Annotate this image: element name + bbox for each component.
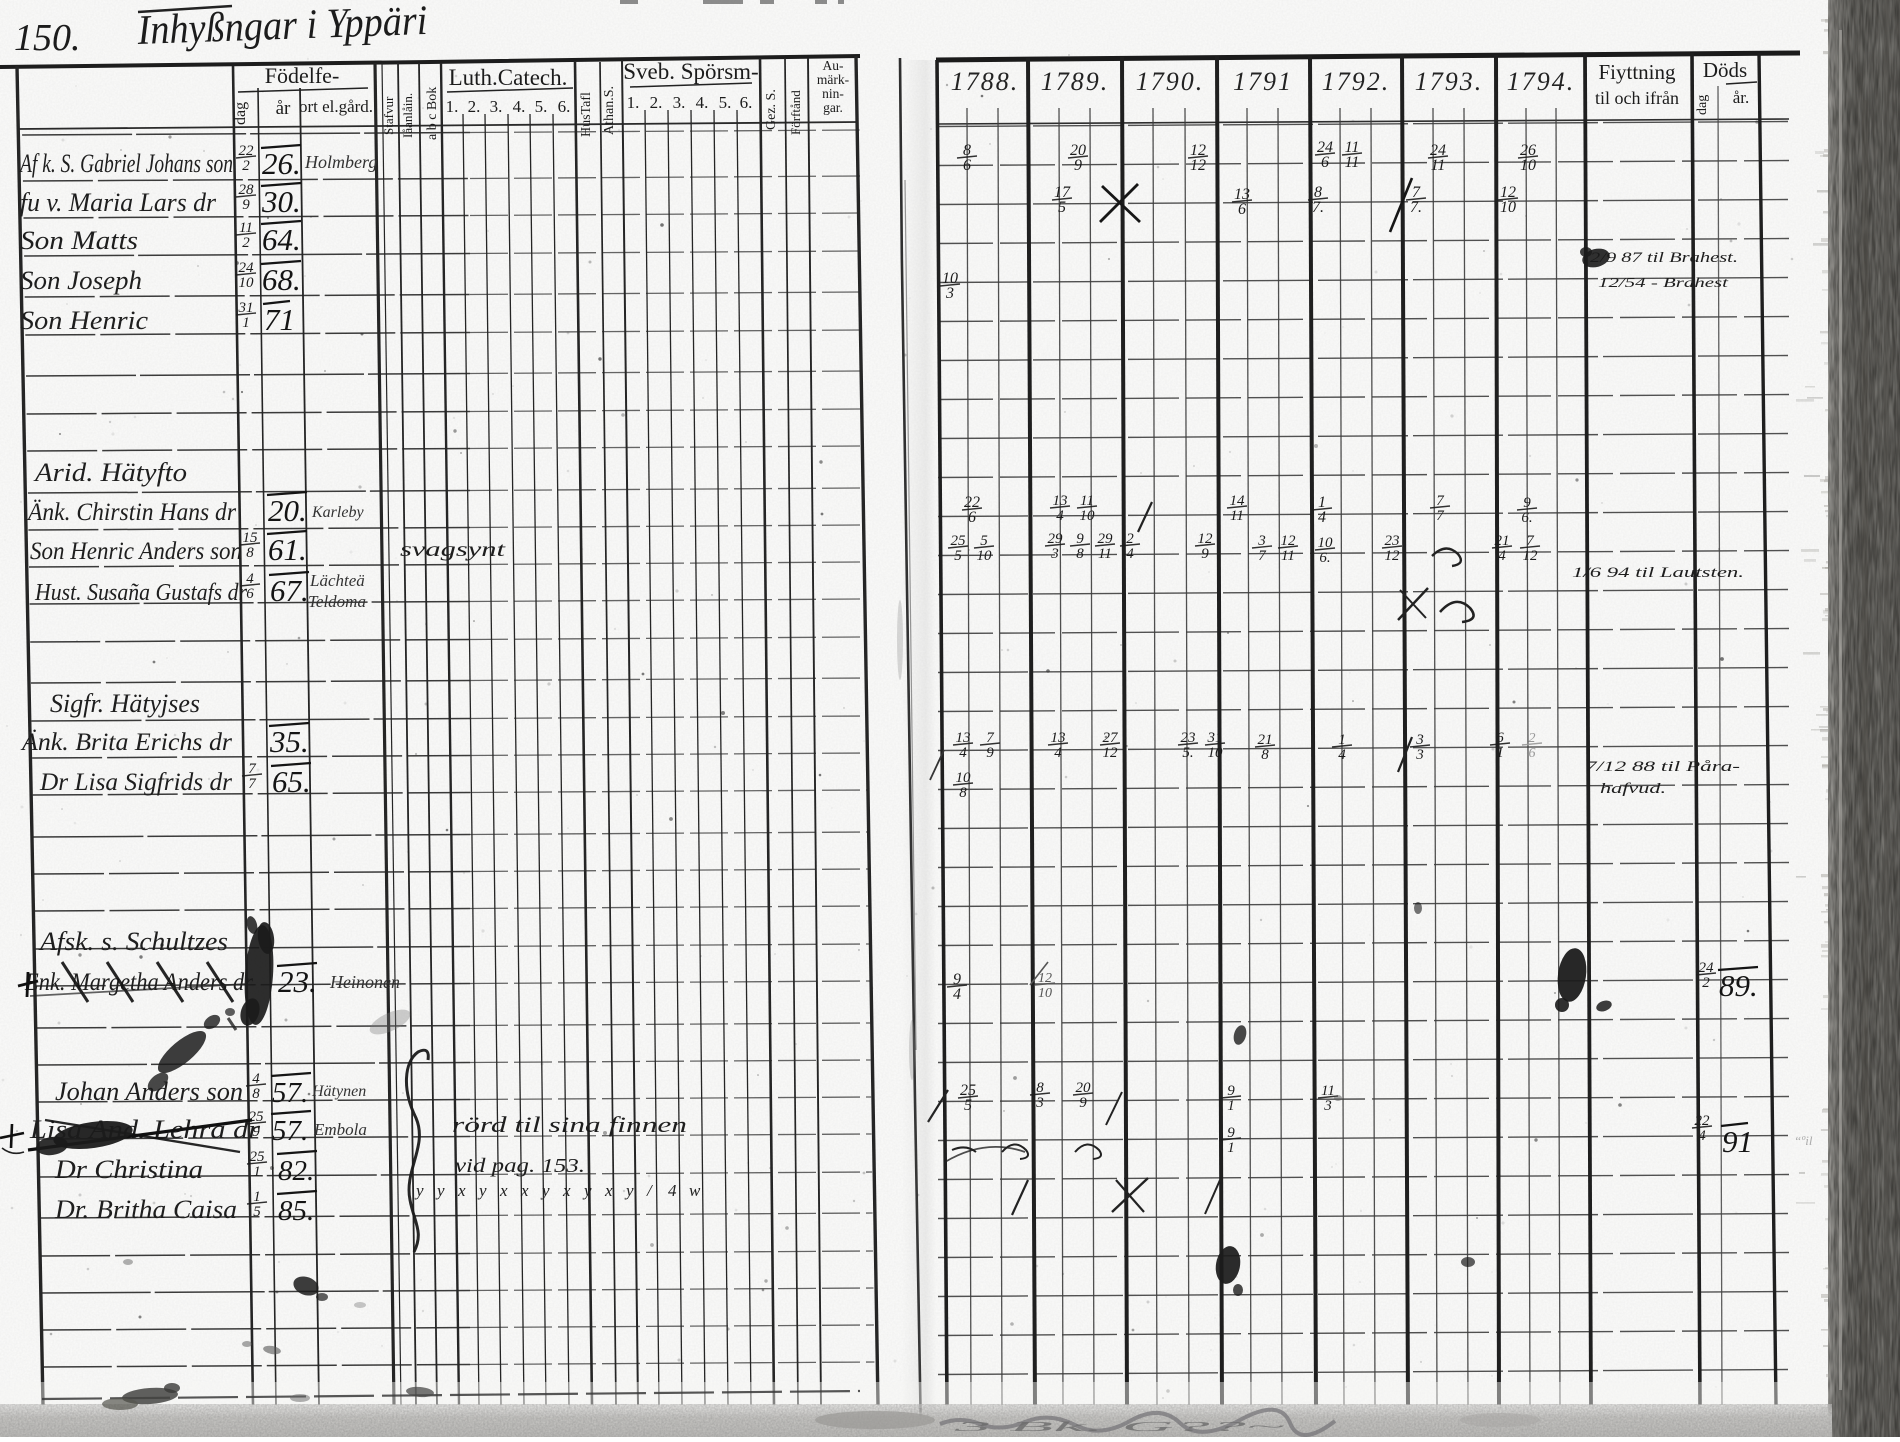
svg-text:4: 4: [959, 745, 967, 761]
svg-text:4.: 4.: [696, 93, 709, 112]
svg-text:1792.: 1792.: [1322, 67, 1391, 96]
svg-text:Lächteä: Lächteä: [309, 571, 365, 590]
svg-text:71: 71: [264, 302, 295, 337]
svg-text:Dr Lisa Sigfrids dr: Dr Lisa Sigfrids dr: [39, 769, 232, 796]
svg-text:3 Bk. G??~: 3 Bk. G??~: [950, 1420, 1287, 1435]
svg-text:1/6 94 til Lautsten.: 1/6 94 til Lautsten.: [1572, 565, 1744, 581]
svg-text:1.: 1.: [446, 97, 459, 116]
svg-text:64.: 64.: [262, 222, 301, 257]
svg-text:11: 11: [1281, 548, 1295, 564]
svg-text:7.: 7.: [1312, 199, 1324, 216]
svg-text:4: 4: [1318, 509, 1326, 526]
svg-text:89.: 89.: [1719, 968, 1758, 1003]
svg-text:2.: 2.: [468, 97, 481, 116]
svg-text:12: 12: [1103, 745, 1119, 761]
svg-text:5.: 5.: [719, 93, 732, 112]
svg-text:y: y: [624, 1181, 634, 1200]
svg-text:y: y: [414, 1181, 424, 1200]
svg-text:10: 10: [1500, 199, 1516, 216]
svg-text:6: 6: [1321, 154, 1329, 171]
svg-text:65.: 65.: [272, 764, 311, 799]
svg-text:20.: 20.: [268, 493, 307, 528]
svg-text:fu v. Maria Lars dr: fu v. Maria Lars dr: [20, 188, 217, 217]
svg-text:Holmberg: Holmberg: [304, 152, 377, 172]
svg-text:91: 91: [1722, 1124, 1753, 1159]
svg-text:år: år: [276, 98, 291, 119]
svg-text:Gez. S.: Gez. S.: [764, 89, 779, 130]
svg-text:Stafvur: Stafvur: [381, 96, 396, 135]
svg-text:Johan Anders son: Johan Anders son: [55, 1077, 243, 1106]
svg-text:rörd til sina finnen: rörd til sina finnen: [452, 1112, 687, 1137]
svg-text:1790.: 1790.: [1136, 67, 1205, 96]
svg-text:x: x: [499, 1181, 508, 1200]
svg-text:dag: dag: [1695, 95, 1710, 115]
svg-text:y: y: [582, 1181, 592, 1200]
svg-text:Födelfe-: Födelfe-: [265, 63, 340, 88]
svg-text:vid pag. 153.: vid pag. 153.: [455, 1155, 585, 1177]
svg-text:x: x: [562, 1181, 571, 1200]
svg-text:9: 9: [242, 197, 250, 213]
svg-text:10: 10: [1208, 745, 1224, 761]
svg-text:5.: 5.: [535, 97, 548, 116]
svg-text:3: 3: [1035, 1095, 1044, 1111]
svg-text:Hätynen: Hätynen: [311, 1083, 366, 1100]
svg-text:Iåanlåin.: Iåanlåin.: [400, 93, 415, 138]
svg-text:8: 8: [252, 1086, 260, 1102]
svg-text:12: 12: [1190, 157, 1206, 174]
svg-text:10: 10: [1520, 157, 1536, 174]
svg-text:Fiyttning: Fiyttning: [1598, 60, 1676, 84]
svg-text:10: 10: [1038, 986, 1052, 1001]
svg-text:12: 12: [1523, 548, 1539, 564]
svg-text:5: 5: [954, 548, 962, 564]
svg-text:12/54 - Brahest: 12/54 - Brahest: [1598, 276, 1730, 291]
svg-text:Embola: Embola: [313, 1120, 367, 1139]
svg-text:9: 9: [252, 1124, 260, 1140]
svg-text:4: 4: [1056, 508, 1064, 524]
svg-text:4.: 4.: [513, 97, 526, 116]
svg-text:8: 8: [1261, 747, 1269, 763]
svg-text:Af k. S. Gabriel Johans son: Af k. S. Gabriel Johans son: [18, 149, 233, 178]
svg-text:9: 9: [1079, 1095, 1087, 1111]
svg-text:Au-: Au-: [823, 58, 844, 73]
svg-text:3: 3: [945, 285, 954, 302]
svg-text:8: 8: [1076, 546, 1084, 562]
svg-text:6.: 6.: [1521, 510, 1532, 526]
svg-text:til och ifrån: til och ifrån: [1595, 88, 1679, 108]
svg-text:1: 1: [1496, 745, 1504, 761]
svg-text:Son Matts: Son Matts: [20, 226, 138, 255]
svg-text:2/9 87 til Brahest.: 2/9 87 til Brahest.: [1590, 250, 1738, 266]
svg-text:35.: 35.: [269, 724, 309, 759]
svg-text:5: 5: [964, 1097, 972, 1114]
svg-text:Döds: Döds: [1703, 58, 1747, 82]
svg-text:Sveb. Spörsm-: Sveb. Spörsm-: [623, 59, 758, 84]
svg-text:7.: 7.: [1410, 199, 1422, 216]
svg-text:3.: 3.: [490, 97, 503, 116]
svg-text:gar.: gar.: [823, 100, 843, 115]
svg-text:2: 2: [1702, 975, 1710, 991]
svg-text:Hust. Susaña Gustafs dr: Hust. Susaña Gustafs dr: [34, 580, 248, 606]
svg-text:Änk. Chirstin Hans dr: Änk. Chirstin Hans dr: [26, 499, 236, 526]
svg-text:Son Henric Anders son: Son Henric Anders son: [30, 538, 242, 565]
svg-text:1: 1: [1227, 1140, 1235, 1156]
svg-text:12: 12: [1385, 548, 1401, 564]
svg-text:Teldoma: Teldoma: [308, 592, 366, 611]
svg-text:Son Henric: Son Henric: [20, 306, 148, 335]
svg-text:6.: 6.: [558, 97, 571, 116]
svg-text:nin-: nin-: [822, 86, 844, 101]
svg-text:8: 8: [246, 545, 254, 561]
svg-text:6: 6: [246, 586, 254, 602]
svg-text:2: 2: [242, 158, 250, 174]
svg-text:märk-: märk-: [817, 72, 850, 87]
svg-text:Afsk. s. Schultzes: Afsk. s. Schultzes: [38, 927, 228, 956]
svg-text:6: 6: [1529, 746, 1536, 761]
svg-text:y: y: [540, 1181, 550, 1200]
svg-text:Heinonen: Heinonen: [329, 972, 400, 992]
svg-text:23.: 23.: [278, 964, 317, 999]
svg-text:x: x: [604, 1181, 613, 1200]
svg-text:Arid. Hätyfto: Arid. Hätyfto: [33, 458, 187, 487]
svg-text:3: 3: [1415, 747, 1424, 763]
svg-text:1794.: 1794.: [1507, 67, 1576, 96]
svg-text:82.: 82.: [278, 1155, 314, 1187]
svg-text:6: 6: [1238, 201, 1246, 218]
svg-text:1: 1: [242, 315, 250, 331]
svg-text:x: x: [457, 1181, 466, 1200]
svg-text:hafvud.: hafvud.: [1600, 781, 1666, 797]
svg-text:30.: 30.: [261, 184, 301, 219]
svg-text:4: 4: [1126, 546, 1134, 562]
svg-text:67.: 67.: [270, 573, 309, 608]
svg-text:Karleby: Karleby: [311, 504, 364, 521]
svg-text:x: x: [520, 1181, 529, 1200]
svg-text:61.: 61.: [268, 532, 307, 567]
svg-text:HusTafl: HusTafl: [579, 92, 594, 137]
svg-text:4: 4: [1498, 548, 1506, 564]
svg-text:1788.: 1788.: [951, 67, 1020, 96]
svg-text:svagsynt: svagsynt: [400, 539, 506, 561]
svg-text:6: 6: [963, 157, 971, 174]
svg-text:1791: 1791: [1233, 67, 1293, 96]
svg-text:11: 11: [1230, 508, 1244, 524]
svg-text:y: y: [477, 1181, 487, 1200]
svg-text:6: 6: [968, 509, 976, 526]
svg-text:9: 9: [986, 745, 994, 761]
svg-text:4: 4: [953, 986, 961, 1003]
svg-text:Son Joseph: Son Joseph: [20, 266, 142, 295]
svg-text:26.: 26.: [262, 146, 301, 181]
svg-text:4: 4: [1698, 1128, 1706, 1144]
svg-text:57.: 57.: [272, 1077, 308, 1109]
svg-text:2.: 2.: [650, 93, 663, 112]
svg-text:w: w: [689, 1181, 701, 1200]
svg-text:5.: 5.: [1182, 745, 1193, 761]
svg-text:10: 10: [1080, 508, 1096, 524]
svg-text:Dr Christina: Dr Christina: [54, 1155, 203, 1184]
svg-text:5: 5: [1058, 199, 1066, 216]
svg-text:Athan.S.: Athan.S.: [602, 86, 617, 135]
svg-text:9: 9: [1074, 157, 1082, 174]
svg-text:150.: 150.: [14, 17, 81, 59]
svg-text:3: 3: [1050, 546, 1059, 562]
svg-text:9: 9: [1201, 546, 1209, 562]
svg-text:3.: 3.: [673, 93, 686, 112]
svg-text:85.: 85.: [278, 1195, 314, 1227]
svg-text:1: 1: [253, 1164, 261, 1180]
svg-text:1789.: 1789.: [1041, 67, 1110, 96]
svg-text:6.: 6.: [740, 93, 753, 112]
svg-text:ort el.gård.: ort el.gård.: [299, 97, 373, 116]
svg-text:1: 1: [1227, 1098, 1235, 1114]
svg-text:10: 10: [977, 548, 993, 564]
svg-text:7/12 88 til Påra-: 7/12 88 til Påra-: [1585, 759, 1740, 775]
svg-text:Dr. Britha Caisa: Dr. Britha Caisa: [54, 1195, 237, 1224]
svg-text:8: 8: [959, 785, 967, 801]
svg-text:6.: 6.: [1319, 550, 1330, 566]
svg-text:4: 4: [1338, 747, 1346, 763]
svg-text:11: 11: [1431, 157, 1446, 174]
svg-text:68.: 68.: [262, 262, 301, 297]
svg-text:3: 3: [1323, 1098, 1332, 1114]
svg-text:4: 4: [668, 1181, 677, 1200]
svg-text:Sigfr. Hätyjses: Sigfr. Hätyjses: [50, 689, 200, 718]
svg-text:“ºil: “ºil: [1794, 1133, 1813, 1148]
svg-text:år.: år.: [1733, 88, 1750, 107]
svg-text:11: 11: [1098, 546, 1112, 562]
svg-text:10: 10: [239, 275, 255, 291]
svg-text:a b c Bok: a b c Bok: [425, 87, 440, 140]
svg-text:1.: 1.: [627, 93, 640, 112]
svg-text:dag: dag: [232, 102, 249, 125]
svg-text:11: 11: [1345, 154, 1360, 171]
svg-text:y: y: [435, 1181, 445, 1200]
svg-text:5: 5: [253, 1204, 261, 1220]
svg-text:Förftånd: Förftånd: [788, 90, 803, 135]
svg-text:Luth.Catech.: Luth.Catech.: [449, 65, 568, 90]
svg-text:1793.: 1793.: [1415, 67, 1484, 96]
svg-text:2: 2: [242, 235, 250, 251]
svg-text:Änk. Brita Erichs dr: Änk. Brita Erichs dr: [20, 729, 232, 756]
svg-text:4: 4: [1054, 745, 1062, 761]
svg-text:57.: 57.: [272, 1115, 308, 1147]
